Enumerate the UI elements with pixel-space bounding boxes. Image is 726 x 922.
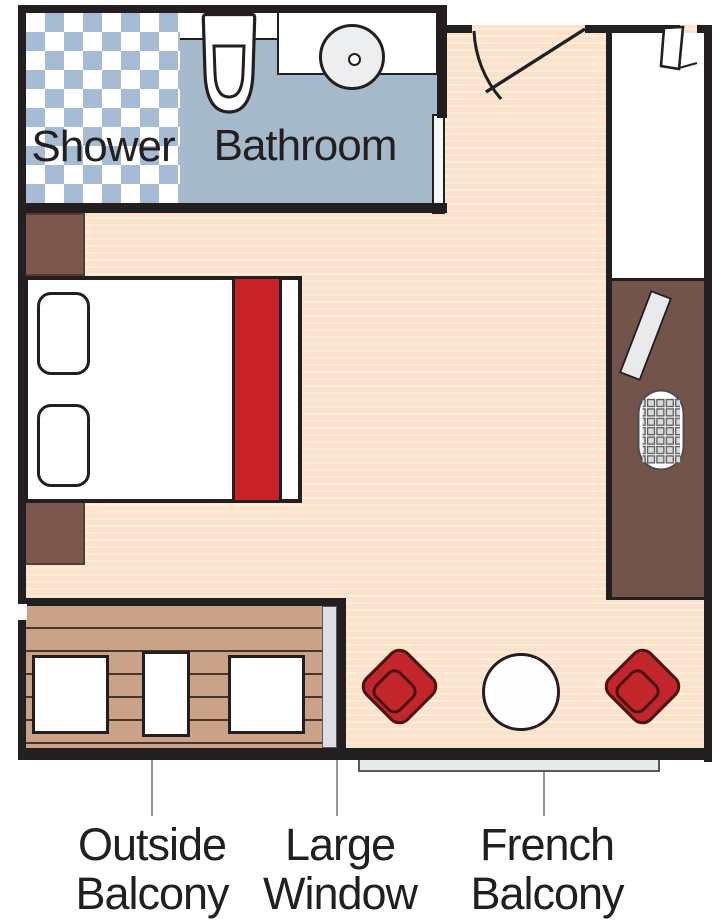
callout-line: French (437, 820, 657, 869)
bed-runner (232, 279, 282, 500)
exterior-area (447, 0, 726, 25)
wall (18, 203, 447, 213)
bathroom-door (432, 114, 445, 214)
shower-tile-area (26, 13, 180, 203)
balcony-chair (228, 655, 305, 734)
sink-icon (319, 24, 385, 90)
nightstand (23, 501, 85, 565)
sink-drain-icon (348, 53, 361, 66)
pillow (37, 404, 90, 487)
balcony-table (142, 651, 190, 737)
callout-large-window: Large Window (230, 820, 450, 918)
wall (585, 25, 680, 33)
large-window (322, 606, 337, 748)
leader-line-outside-balcony (151, 756, 153, 816)
callout-line: Balcony (437, 869, 657, 918)
wall (337, 598, 346, 748)
closet-area (612, 33, 704, 278)
round-table-icon (482, 653, 560, 731)
callout-line: Window (230, 869, 450, 918)
callout-line: Large (230, 820, 450, 869)
vent-grid-icon (637, 389, 685, 471)
leader-line-french-balcony (543, 770, 545, 816)
leader-line-large-window (336, 756, 338, 816)
wall (437, 25, 472, 33)
wall (704, 25, 712, 762)
cabin-floor-plan: Shower Bathroom Outside Balcony Large Wi… (0, 0, 726, 922)
wall (18, 5, 447, 13)
wall (26, 598, 346, 606)
french-balcony-railing (358, 758, 660, 772)
wall (437, 5, 447, 118)
shower-label: Shower (14, 122, 192, 172)
callout-french-balcony: French Balcony (437, 820, 657, 918)
wall (18, 5, 26, 758)
pillow (37, 292, 90, 375)
wall (18, 748, 712, 760)
nightstand (23, 213, 85, 276)
wall (606, 30, 612, 600)
toilet-icon (199, 13, 259, 117)
bathroom-label: Bathroom (190, 121, 420, 171)
hull-notch (18, 604, 27, 620)
balcony-chair (32, 655, 109, 734)
